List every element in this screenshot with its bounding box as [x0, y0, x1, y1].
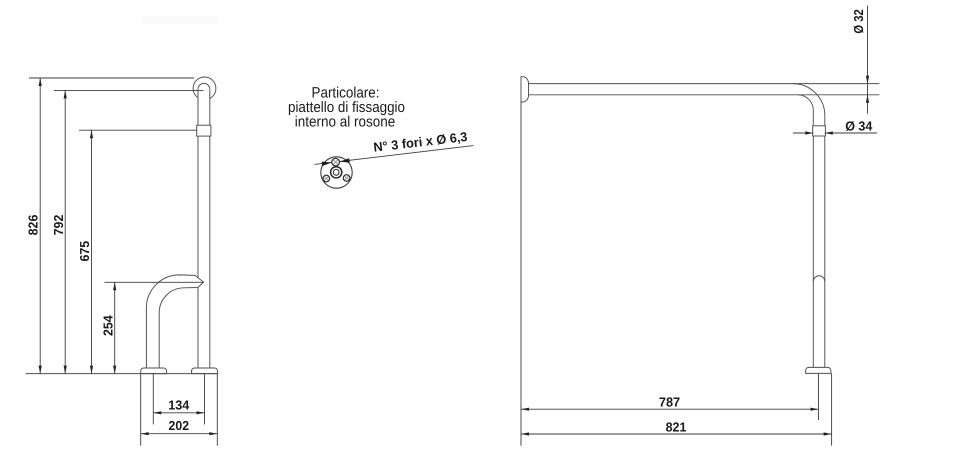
svg-text:821: 821: [666, 419, 687, 434]
svg-text:254: 254: [100, 315, 115, 336]
svg-text:675: 675: [77, 241, 92, 262]
svg-text:Ø 32: Ø 32: [851, 9, 866, 33]
svg-text:787: 787: [659, 395, 680, 410]
svg-text:Ø 34: Ø 34: [845, 119, 873, 134]
svg-text:792: 792: [51, 215, 66, 236]
svg-text:134: 134: [168, 398, 190, 413]
svg-text:N° 3 fori x Ø 6,3: N° 3 fori x Ø 6,3: [373, 129, 469, 155]
svg-text:826: 826: [25, 215, 40, 236]
svg-text:interno al rosone: interno al rosone: [295, 114, 396, 131]
svg-text:202: 202: [169, 418, 190, 433]
